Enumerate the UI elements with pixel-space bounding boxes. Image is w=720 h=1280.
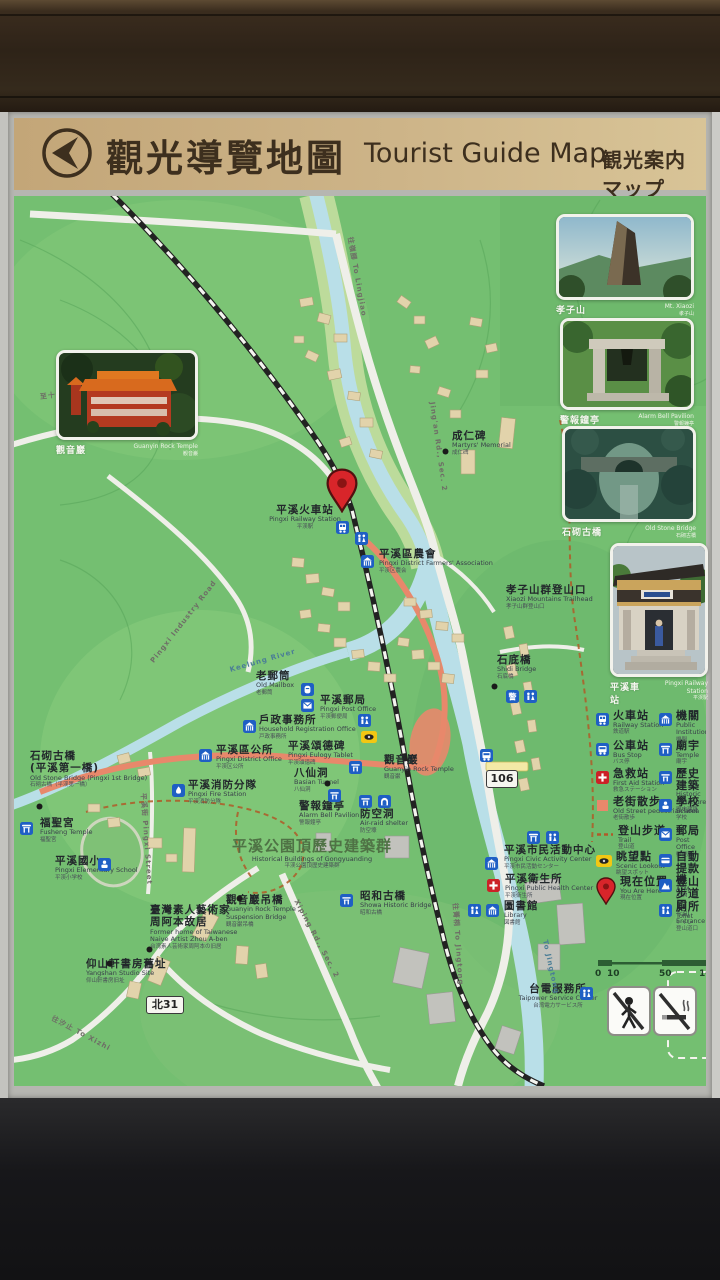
poi-farmers-association: 平溪區農會Pingxi District Farmers' Associatio… (379, 548, 493, 575)
legend-label-zh: 公車站 (613, 740, 649, 752)
poi-label-en: Fusheng Temple (40, 829, 92, 837)
legend-item-bus: 公車站Bus Stopバス停 (596, 740, 649, 766)
building (420, 609, 433, 618)
toilet-icon (355, 530, 368, 549)
building (299, 609, 311, 618)
historic-icon (328, 787, 341, 806)
toilet-icon (546, 829, 559, 848)
building (469, 317, 482, 327)
building (412, 650, 425, 660)
firstaid-icon (596, 769, 609, 788)
legend-label-zh: 廟宇 (676, 740, 700, 752)
building (306, 573, 320, 583)
building (360, 418, 373, 427)
legend-label-zh: 機關 (676, 710, 706, 722)
legend-label-zh: 火車站 (613, 710, 663, 722)
building (108, 817, 121, 827)
building (384, 674, 396, 682)
building (88, 804, 100, 812)
poi-label-en: Air-raid shelter (360, 820, 408, 828)
inst-icon (361, 553, 374, 572)
photo-caption-jp: 孝子山 (665, 311, 694, 317)
building (414, 316, 425, 324)
wood-groove (0, 14, 720, 16)
building (255, 963, 268, 978)
building (404, 598, 416, 606)
wall-edge-left (0, 112, 8, 1098)
building (397, 637, 409, 646)
poi-gongyuanding: 平溪公園頂歷史建築群Historical Buildings of Gongyu… (232, 838, 392, 870)
legend-item-pin: 現在位置You Are Here現在位置 (596, 876, 668, 909)
building (427, 992, 456, 1025)
bus-icon (480, 747, 493, 766)
poi-label-en: Yangshan Studio Site (86, 970, 167, 978)
scale-tick: 10 (607, 969, 620, 979)
poi-label-jp: 石砌古橋（平渓第一橋） (30, 782, 147, 788)
building (334, 334, 347, 342)
no-smoking-sign (653, 986, 697, 1036)
post-icon (301, 697, 314, 716)
building (352, 649, 365, 658)
building (166, 854, 177, 862)
photo-caption-zh: 警報鐘亭 (560, 413, 600, 426)
inst-icon (486, 902, 499, 921)
tunnel-icon (378, 793, 391, 812)
legend-text: 學校School学校 (676, 796, 700, 822)
wood-beam (0, 0, 720, 112)
scale-tick: 50 (659, 969, 672, 979)
poi-label-en: Old Mailbox (256, 682, 294, 690)
legend-label-zh: 眺望點 (616, 851, 665, 863)
legend-text: 廟宇Temple廟宇 (676, 740, 700, 766)
no-pedestrian-icon (609, 988, 649, 1034)
school-icon (98, 856, 111, 875)
building (294, 336, 304, 343)
building (436, 622, 449, 631)
poi-label-en: Library (504, 912, 539, 920)
poi-old-stone-bridge-west: 石砌古橋 (平溪第一橋)Old Stone Bridge (Pingxi 1st… (30, 750, 147, 789)
legend-item-school: 學校School学校 (659, 796, 700, 822)
inst-icon (243, 718, 256, 737)
eye-icon (596, 852, 612, 871)
inst-icon (659, 711, 672, 730)
atm-icon (659, 852, 672, 871)
temple-icon (659, 741, 672, 760)
legend-label-jp: 登山道口 (676, 926, 706, 933)
building (334, 638, 346, 647)
ground-shadow (0, 1098, 720, 1280)
traildash-icon (596, 826, 614, 845)
legend-label-zh: 學校 (676, 796, 700, 808)
poi-fusheng-temple: 福聖宮Fusheng Temple福聖宮 (40, 817, 92, 844)
building (425, 336, 440, 349)
poi-label-en: Martyrs' Memorial (452, 442, 511, 450)
no-pedestrian-sign (607, 986, 651, 1036)
toilet-icon (524, 688, 537, 707)
building (321, 587, 334, 597)
legend-label-zh: 廁所 (676, 901, 700, 913)
photo-caption-en: Mt. Xiaozi (665, 303, 694, 311)
building (292, 557, 305, 567)
poi-household-registration: 戶政事務所Household Registration Office戸政事務所 (259, 714, 356, 741)
poi-label-jp: 平渓消防分隊 (188, 799, 257, 805)
pin-icon (596, 877, 616, 909)
legend-label-zh: 急救站 (613, 768, 664, 780)
poi-label-en: Pingxi District Farmers' Association (379, 560, 493, 568)
poi-label-jp: 石底橋 (497, 674, 536, 680)
legend-label-jp: 学校 (676, 815, 700, 822)
poi-label-jp: 老郵筒 (256, 690, 294, 696)
historic-icon (359, 793, 372, 812)
photo-image (560, 318, 694, 410)
poi-label-jp: 平渓頌徳碑 (288, 760, 353, 766)
poi-shidi-bridge: 石底橋Shidi Bridge石底橋 (497, 654, 536, 681)
building (476, 370, 488, 378)
dot-icon (146, 938, 153, 957)
poi-label-jp: 成仁碑 (452, 450, 511, 456)
photo-caption-en: Pingxi Railway Station (647, 680, 708, 695)
poi-xiaozi-trailhead: 孝子山群登山口Xiaozi Mountains Trailhead孝子山群登山口 (506, 584, 593, 611)
building (452, 634, 464, 642)
photo-caption-jp: 平渓駅 (647, 695, 708, 701)
train-icon (336, 519, 349, 538)
dot-icon (36, 795, 43, 814)
poi-district-office: 平溪區公所Pingxi District Office平渓区公所 (216, 744, 282, 771)
legend-label-jp: 救急ステーション (613, 787, 664, 794)
historic-icon (659, 769, 672, 788)
poi-fire-station: 平溪消防分隊Pingxi Fire Station平渓消防分隊 (188, 779, 257, 806)
poi-label-en: Pingxi District Office (216, 756, 282, 764)
poi-label-jp: 平渓駅 (269, 524, 341, 530)
legend-label-en: Toilet (676, 913, 700, 921)
building (397, 295, 411, 308)
title-bar: 觀光導覽地圖 Tourist Guide Map 観光案内マップ (14, 118, 706, 190)
photo-pingxi-station: 平溪車站 Pingxi Railway Station平渓駅 (610, 543, 708, 706)
train-icon (596, 711, 609, 730)
dot-icon (491, 675, 498, 694)
page-title-zh: 觀光導覽地圖 (106, 128, 346, 182)
building (442, 673, 455, 683)
photo-caption-en: Alarm Bell Pavilion (638, 413, 694, 421)
legend-label-jp: トイレ (676, 920, 700, 927)
scale-tick: 0 (595, 969, 601, 979)
wall-edge-right (712, 112, 720, 1098)
photo-alarm-bell-pavilion: 警報鐘亭 Alarm Bell Pavilion警報鐘亭 (560, 318, 694, 427)
toilet-icon (580, 985, 593, 1004)
poi-label-en: Pingxi Elementary School (55, 867, 138, 875)
toilet-icon (468, 902, 481, 921)
legend-item-toilet: 廁所Toiletトイレ (659, 901, 700, 927)
no-smoking-icon (655, 988, 695, 1034)
poi-label-en: Xiaozi Mountains Trailhead (506, 596, 593, 604)
poi-eulogy-tablet: 平溪頌德碑Pingxi Eulogy Tablet平渓頌徳碑 (288, 740, 353, 767)
toilet-icon (659, 902, 672, 921)
page-title-jp: 観光案内マップ (602, 144, 706, 202)
legend-item-train: 火車站Railway Station鉄道駅 (596, 710, 663, 736)
poi-label-en: Pingxi Fire Station (188, 791, 257, 799)
poi-label-en: Guanyin Rock Temple (384, 766, 454, 774)
legend-item-temple: 廟宇Temple廟宇 (659, 740, 700, 766)
poi-label-jp: 平渓公園頂歴史建築群 (232, 863, 392, 869)
inst-icon (199, 747, 212, 766)
temple-icon (20, 820, 33, 839)
svg-text:警: 警 (508, 692, 517, 702)
building (318, 623, 331, 632)
building (428, 662, 440, 670)
legend-label-jp: バス停 (613, 759, 649, 766)
fire-icon (172, 782, 185, 801)
poi-elementary-school: 平溪國小Pingxi Elementary School平渓小学校 (55, 855, 138, 882)
legend-text: 公車站Bus Stopバス停 (613, 740, 649, 766)
poi-label-jp: 平渓区農会 (379, 568, 493, 574)
dot-icon (236, 887, 243, 906)
building (557, 903, 586, 945)
poi-label-en: Household Registration Office (259, 726, 356, 734)
post-icon (659, 826, 672, 845)
building (527, 720, 537, 733)
building (182, 828, 196, 872)
school-icon (659, 797, 672, 816)
pin-icon (326, 468, 358, 517)
poi-label-en: Shidi Bridge (497, 666, 536, 674)
photo-image (610, 543, 708, 677)
firstaid-icon (487, 877, 500, 896)
photo-caption-en: Guanyin Rock Temple (134, 443, 198, 451)
building (531, 757, 541, 770)
toilet-icon (358, 712, 371, 731)
building (450, 410, 461, 418)
legend-text: 火車站Railway Station鉄道駅 (613, 710, 663, 736)
building (348, 391, 361, 401)
poi-public-health-center: 平溪衛生所Pingxi Public Health Center平渓衛生所 (505, 873, 593, 900)
poi-label-jp: 平渓衛生所 (505, 893, 593, 899)
legend-label-en: Public Institution (676, 722, 706, 738)
poi-label-zh: 石砌古橋 (平溪第一橋) (30, 750, 147, 775)
photo-image (562, 426, 696, 522)
historic-icon (340, 892, 353, 911)
photo-image (556, 214, 694, 300)
poi-label-jp: 孝子山群登山口 (506, 604, 593, 610)
legend-label-zh: 歷史建築 (676, 768, 706, 791)
photo-mt-xiaozi: 孝子山 Mt. Xiaozi孝子山 (556, 214, 694, 317)
building (485, 343, 497, 353)
police-icon: 警 (506, 688, 519, 707)
poi-label-jp: 平渓小学校 (55, 875, 138, 881)
poi-showa-bridge: 昭和古橋Showa Historic Bridge昭和古橋 (360, 890, 432, 917)
building (437, 386, 451, 397)
arrow-logo-icon (40, 126, 94, 180)
poi-label-jp: 観音巌 (384, 774, 454, 780)
page-title-en: Tourist Guide Map (364, 138, 606, 169)
poi-guanyin-rock-temple: 觀音巖Guanyin Rock Temple観音巌 (384, 754, 454, 781)
scale-tick: 100 (699, 969, 706, 979)
wood-groove (0, 96, 720, 98)
photo-caption-zh: 孝子山 (556, 303, 586, 316)
poi-label-zh: 平溪公園頂歷史建築群 (232, 838, 392, 856)
poi-label-en: Pingxi Railway Station (269, 516, 341, 524)
photo-caption-zh: 觀音巖 (56, 443, 86, 456)
building (410, 366, 421, 374)
trailent-icon (659, 877, 672, 896)
poi-label-en: Pingxi Eulogy Tablet (288, 752, 353, 760)
legend-text: 眺望點Scenic Lookout眺望スポット (616, 851, 665, 877)
poi-library: 圖書館Library図書館 (504, 900, 539, 927)
poi-yangshan-studio: 仰山軒書房舊址Yangshan Studio Site仰山軒書房旧址 (86, 958, 167, 985)
oldstreet-icon (596, 797, 609, 816)
photo-caption-zh: 平溪車站 (610, 680, 647, 706)
building (338, 602, 350, 611)
poi-label-zh: 臺灣素人藝術家 周阿本故居 (150, 904, 237, 929)
poi-zhou-aben-home: 臺灣素人藝術家 周阿本故居Former home of Taiwanese Na… (150, 904, 237, 951)
poi-label-jp: 図書館 (504, 920, 539, 926)
photo-guanyin-temple: 觀音巖 Guanyin Rock Temple観音巌 (56, 350, 198, 457)
poi-label-en: Showa Historic Bridge (360, 902, 432, 910)
photo-caption-en: Old Stone Bridge (645, 525, 696, 533)
poi-old-mailbox: 老郵筒Old Mailbox老郵筒 (256, 670, 294, 697)
legend-item-traildash: 登山步道Trail登山道 (596, 825, 666, 851)
route-shield-route-106: 106 (486, 770, 518, 788)
dot-icon (106, 952, 113, 971)
photo-caption-jp: 石砌古橋 (645, 533, 696, 539)
inst-icon (485, 855, 498, 874)
legend-text: 廁所Toiletトイレ (676, 901, 700, 927)
poi-label-jp: 仰山軒書房旧址 (86, 978, 167, 984)
poi-martyrs-memorial: 成仁碑Martyrs' Memorial成仁碑 (452, 430, 511, 457)
photo-of-tourist-map-sign: 觀光導覽地圖 Tourist Guide Map 観光案内マップ (0, 0, 720, 1280)
bus-icon (596, 741, 609, 760)
legend-item-firstaid: 急救站First Aid Station救急ステーション (596, 768, 664, 794)
temple-icon (527, 829, 540, 848)
poi-label-jp: 昭和古橋 (360, 910, 432, 916)
poi-label-jp: 福聖宮 (40, 837, 92, 843)
poi-label-en: Pingxi Civic Activity Center (504, 856, 596, 864)
photo-image (56, 350, 198, 440)
poi-label-en: Alarm Bell Pavilion (299, 812, 359, 820)
legend-label-jp: 鉄道駅 (613, 729, 663, 736)
legend-label-zh: 郵局 (676, 825, 706, 837)
poi-label-en: Pingxi Public Health Center (505, 885, 593, 893)
legend-item-eye: 眺望點Scenic Lookout眺望スポット (596, 851, 665, 877)
poi-label-en: Basian Tunnel (294, 779, 339, 787)
poi-label-jp: 平渓区公所 (216, 764, 282, 770)
poi-label-jp: 台湾電力サービス所 (519, 1003, 598, 1009)
route-shield-route-north-31: 北31 (146, 996, 184, 1014)
historic-icon (349, 759, 362, 778)
poi-label-jp: 台湾素人芸術家周阿本の旧居 (150, 944, 237, 950)
building (368, 662, 381, 672)
photo-old-stone-bridge: 石砌古橋 Old Stone Bridge石砌古橋 (562, 426, 696, 539)
legend-label-jp: 廟宇 (676, 759, 700, 766)
poi-label-en: Former home of Taiwanese Naive Artist Zh… (150, 929, 237, 944)
photo-caption-zh: 石砌古橋 (562, 525, 602, 538)
photo-caption-jp: 観音巌 (134, 451, 198, 457)
legend-text: 急救站First Aid Station救急ステーション (613, 768, 664, 794)
poi-label-jp: 警報鐘亭 (299, 820, 359, 826)
poi-label-jp: 防空壕 (360, 828, 408, 834)
poi-label-jp: 平渓市民活動センター (504, 864, 596, 870)
